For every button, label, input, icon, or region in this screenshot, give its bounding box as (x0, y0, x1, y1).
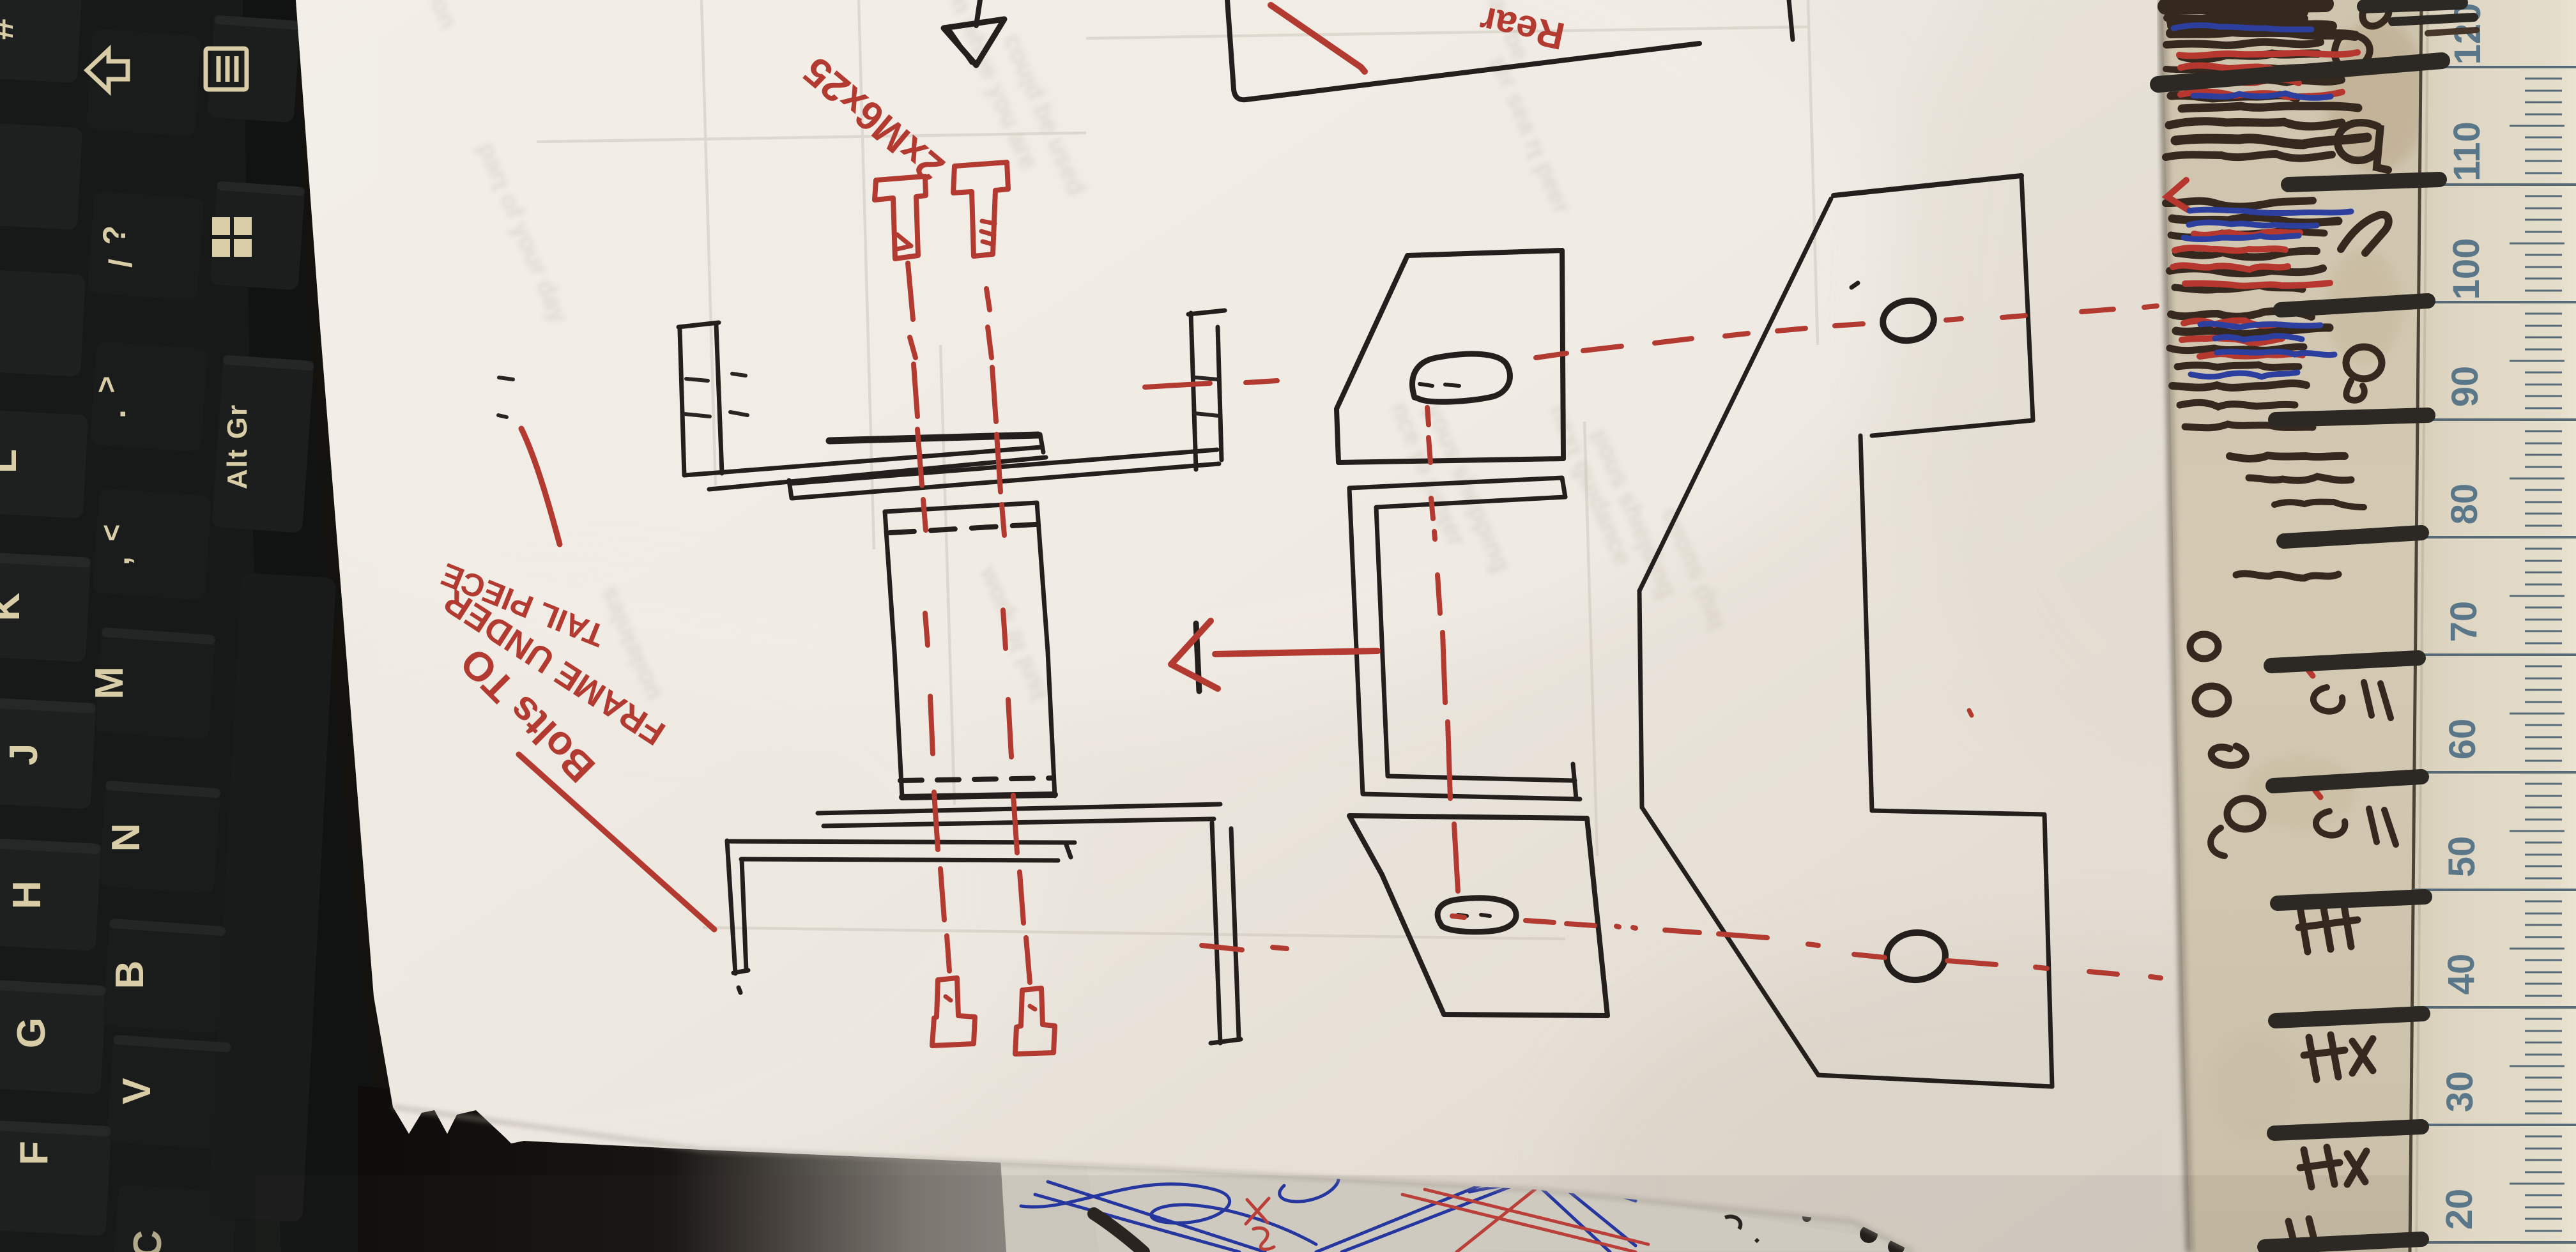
svg-text:B: B (108, 961, 152, 989)
svg-text:<: < (95, 524, 128, 542)
svg-text:70: 70 (2443, 601, 2485, 643)
svg-text:M: M (88, 666, 132, 699)
svg-text:40: 40 (2441, 954, 2482, 995)
svg-text:J: J (2, 744, 46, 765)
svg-text:60: 60 (2442, 719, 2483, 760)
svg-text:F: F (12, 1141, 56, 1165)
svg-text:G: G (10, 1018, 54, 1048)
svg-text:>: > (89, 376, 123, 393)
svg-text:20: 20 (2439, 1189, 2480, 1230)
svg-text:V: V (115, 1078, 159, 1104)
svg-text:,: , (100, 556, 136, 565)
svg-text:100: 100 (2446, 238, 2487, 300)
svg-text:?: ? (96, 225, 132, 245)
svg-text:30: 30 (2439, 1071, 2481, 1113)
svg-text:90: 90 (2444, 366, 2486, 408)
svg-text:110: 110 (2446, 121, 2488, 181)
svg-text:': ' (0, 174, 15, 182)
svg-text:H: H (5, 881, 49, 910)
svg-text:80: 80 (2444, 484, 2485, 525)
svg-text:.: . (96, 409, 132, 418)
svg-text:/: / (103, 259, 139, 268)
svg-text:50: 50 (2441, 836, 2483, 878)
svg-text:K: K (0, 592, 28, 621)
svg-text:L: L (0, 449, 25, 473)
svg-text:Alt Gr: Alt Gr (222, 404, 253, 489)
svg-text:#: # (0, 18, 22, 40)
svg-text:C: C (126, 1230, 170, 1252)
svg-text:N: N (104, 823, 148, 852)
